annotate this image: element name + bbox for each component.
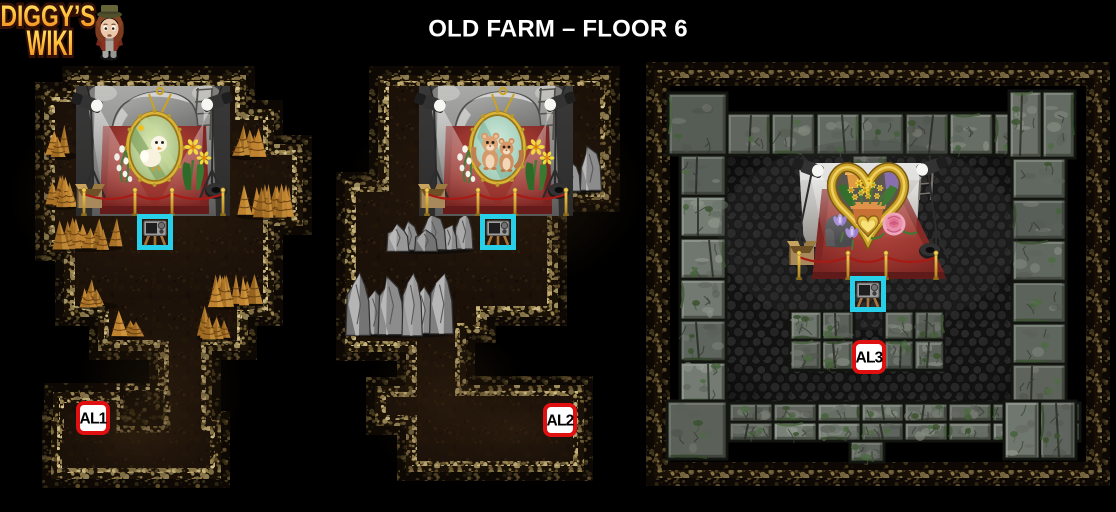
svg-text:AL2: AL2 [547,413,574,430]
svg-text:AL1: AL1 [80,411,108,428]
svg-text:AL3: AL3 [856,350,884,367]
svg-text:OLD FARM – FLOOR 6: OLD FARM – FLOOR 6 [428,16,688,43]
svg-text:WIKI: WIKI [27,25,74,64]
